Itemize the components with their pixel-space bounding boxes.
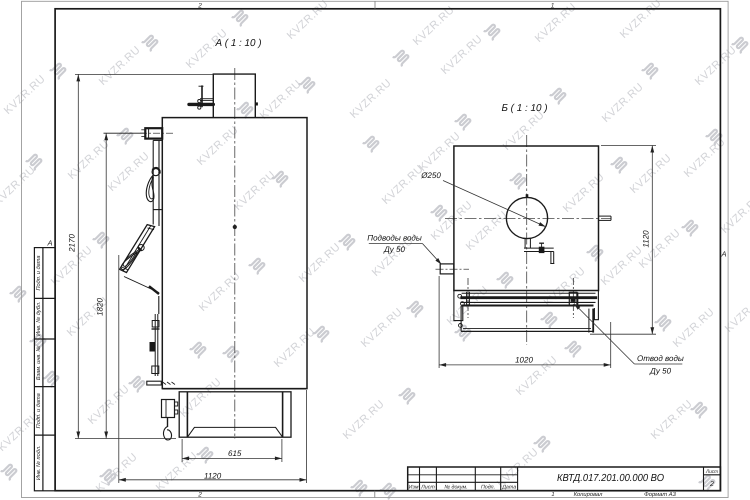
svg-text:Инв. № подл.: Инв. № подл. <box>35 445 42 480</box>
svg-text:№ докум.: № докум. <box>444 485 467 491</box>
svg-text:1120: 1120 <box>204 471 222 480</box>
svg-text:Б ( 1 : 10 ): Б ( 1 : 10 ) <box>502 103 548 114</box>
svg-text:Отвод воды: Отвод воды <box>637 354 684 363</box>
svg-text:Ду 50: Ду 50 <box>649 367 671 376</box>
svg-text:1: 1 <box>551 2 555 9</box>
svg-text:Лист: Лист <box>420 485 435 491</box>
svg-text:2170: 2170 <box>68 234 77 253</box>
svg-text:Изм: Изм <box>409 485 419 491</box>
svg-text:Подводы воды: Подводы воды <box>367 234 422 243</box>
svg-text:1820: 1820 <box>96 298 105 316</box>
svg-text:1120: 1120 <box>642 230 651 248</box>
svg-text:2: 2 <box>709 481 714 488</box>
svg-text:Ø250: Ø250 <box>420 171 441 180</box>
svg-text:Подп. и дата: Подп. и дата <box>35 255 42 290</box>
svg-text:Взам. инв. №: Взам. инв. № <box>36 345 42 380</box>
svg-text:Дата: Дата <box>501 485 516 491</box>
svg-text:А ( 1 : 10 ): А ( 1 : 10 ) <box>215 38 262 49</box>
svg-text:Формат А3: Формат А3 <box>644 491 676 498</box>
svg-text:2: 2 <box>197 492 202 499</box>
svg-text:Лист: Лист <box>705 469 718 475</box>
svg-text:А: А <box>46 239 52 248</box>
svg-text:КВТД.017.201.00.000 ВО: КВТД.017.201.00.000 ВО <box>557 473 664 484</box>
svg-text:Подп. и дата: Подп. и дата <box>35 393 42 428</box>
svg-text:Ду 50: Ду 50 <box>383 245 405 254</box>
svg-text:А: А <box>720 250 726 259</box>
svg-text:615: 615 <box>228 449 242 458</box>
svg-text:2: 2 <box>197 2 202 9</box>
svg-text:Подп.: Подп. <box>481 485 495 491</box>
svg-text:1: 1 <box>551 492 554 498</box>
svg-text:1020: 1020 <box>515 355 533 364</box>
svg-text:Инв. № дубл.: Инв. № дубл. <box>35 301 42 335</box>
svg-text:Копировал: Копировал <box>574 492 604 498</box>
